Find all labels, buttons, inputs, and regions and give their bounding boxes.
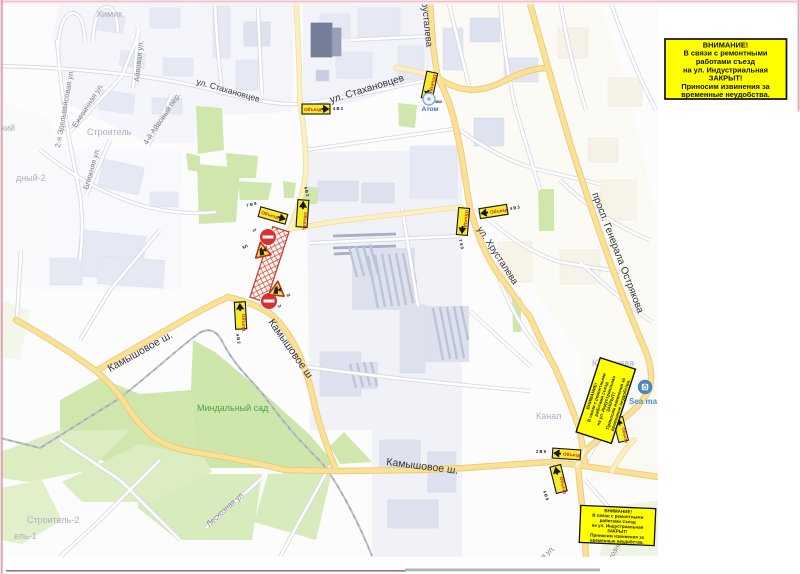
svg-text:временные неудобства.: временные неудобства. bbox=[681, 90, 769, 99]
svg-text:4 В 2: 4 В 2 bbox=[333, 106, 344, 111]
svg-text:Атом: Атом bbox=[422, 106, 439, 113]
svg-text:ель-1: ель-1 bbox=[14, 531, 37, 541]
svg-text:Строитель-2: Строитель-2 bbox=[27, 515, 79, 525]
svg-text:Строитель: Строитель bbox=[87, 127, 132, 137]
svg-text:4В2: 4В2 bbox=[435, 100, 442, 104]
svg-text:Миндальный сад: Миндальный сад bbox=[197, 403, 269, 413]
svg-text:Канал: Канал bbox=[536, 411, 561, 421]
svg-text:Sea ma: Sea ma bbox=[629, 397, 658, 406]
svg-text:Химик: Химик bbox=[96, 9, 122, 19]
svg-text:2 В 9: 2 В 9 bbox=[536, 449, 547, 454]
svg-text:дный-2: дный-2 bbox=[16, 173, 46, 183]
